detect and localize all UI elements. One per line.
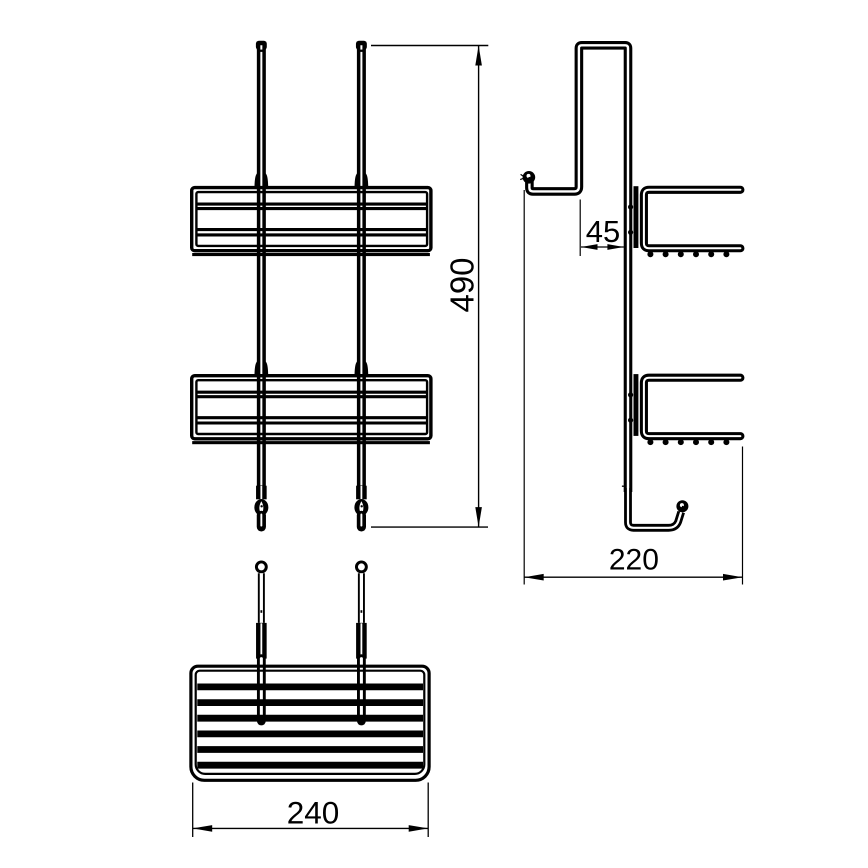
svg-text:490: 490 <box>444 257 481 312</box>
svg-text:240: 240 <box>287 794 340 830</box>
svg-text:220: 220 <box>609 544 659 577</box>
svg-text:45: 45 <box>586 214 620 249</box>
